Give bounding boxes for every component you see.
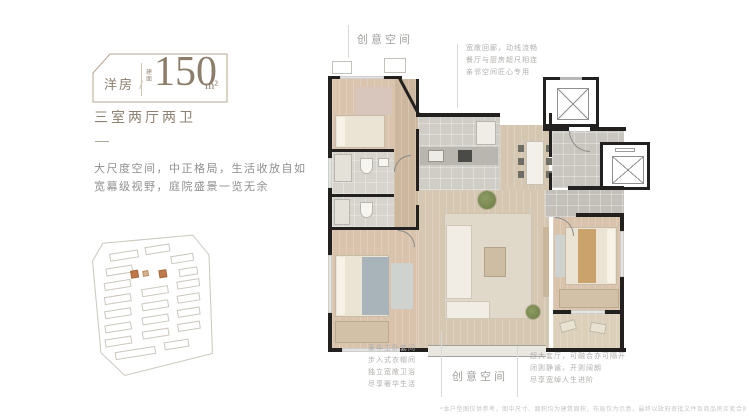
elevator-x-symbol bbox=[557, 88, 589, 120]
wall bbox=[418, 113, 500, 117]
product-type-text: 洋房 bbox=[104, 77, 134, 92]
master-note-1: 豪华主卧套间 bbox=[368, 343, 416, 353]
wall bbox=[549, 173, 552, 190]
area-prefix: 建面 bbox=[146, 70, 153, 84]
dining-note-2: 闭则静谧，开则阔朗 bbox=[530, 363, 602, 373]
wall bbox=[543, 127, 569, 131]
bathtub bbox=[334, 199, 350, 225]
bottom-space-label: 创意空间 bbox=[452, 368, 508, 384]
top-space-label: 创意空间 bbox=[357, 31, 413, 47]
stove bbox=[458, 150, 472, 162]
toilet bbox=[360, 158, 373, 174]
wall bbox=[328, 194, 394, 197]
sink bbox=[378, 158, 389, 167]
sofa-chaise bbox=[446, 301, 490, 319]
dining-chair bbox=[518, 171, 524, 178]
wardrobe bbox=[335, 321, 389, 343]
dining-note-1: 超大套厅，可融合亦可隔开 bbox=[530, 351, 626, 361]
kitchen-island bbox=[476, 121, 496, 145]
wall bbox=[590, 127, 626, 131]
disclaimer-text: *本户型图仅供参考，图中尺寸、面积均为建筑面积，布局仅为示意，最终以政府审批文件… bbox=[440, 404, 746, 413]
master-notes-divider bbox=[441, 331, 442, 397]
wall bbox=[549, 113, 552, 157]
section-dash bbox=[95, 141, 109, 142]
dining-note-3: 尽享宽绰人生进阶 bbox=[530, 375, 594, 385]
wall bbox=[576, 213, 624, 217]
rug bbox=[356, 87, 392, 115]
sofa bbox=[446, 225, 472, 299]
bed-pillow bbox=[337, 117, 345, 146]
floor-plan bbox=[328, 55, 662, 360]
bed-blanket bbox=[362, 257, 389, 315]
wall bbox=[416, 79, 419, 117]
master-note-2: 步入式衣帽间 bbox=[368, 355, 416, 365]
ac-platform bbox=[332, 61, 352, 74]
dining-notes-divider bbox=[517, 346, 518, 397]
entry-note-1: 宽敞回廊，动线流畅 bbox=[466, 43, 538, 53]
wall bbox=[416, 129, 419, 191]
rooms-summary: 三室两厅两卫 bbox=[94, 107, 196, 127]
wall bbox=[553, 310, 571, 314]
site-plan-sketch bbox=[78, 228, 230, 380]
window bbox=[340, 76, 384, 79]
rug bbox=[555, 235, 565, 277]
shower bbox=[334, 154, 352, 182]
window bbox=[571, 310, 605, 314]
bed-blanket bbox=[578, 229, 596, 283]
intro-line-1: 大尺度空间，中正格局，生活收放自如 bbox=[94, 160, 307, 176]
wall bbox=[605, 310, 623, 314]
intro-line-2: 宽幕级视野，庭院盛景一览无余 bbox=[94, 178, 269, 194]
tv-console bbox=[543, 227, 549, 297]
bed-pillow bbox=[337, 257, 345, 315]
rug bbox=[391, 263, 413, 309]
elevator-top-notch bbox=[560, 77, 582, 80]
elevator-x-symbol bbox=[612, 156, 644, 184]
badge-divider bbox=[141, 63, 142, 96]
hallway-strip bbox=[394, 79, 418, 229]
product-type-label: 洋房 / bbox=[104, 74, 145, 93]
window bbox=[328, 158, 332, 188]
toilet bbox=[360, 202, 373, 218]
window bbox=[620, 231, 624, 277]
bed-guest bbox=[335, 255, 389, 317]
master-note-3: 独立宽敞卫浴 bbox=[368, 367, 416, 377]
bed-secondary bbox=[335, 115, 385, 148]
area-unit: m² bbox=[205, 78, 218, 93]
dining-chair bbox=[518, 145, 524, 152]
bay-window bbox=[428, 345, 546, 357]
wall bbox=[328, 149, 394, 152]
window bbox=[328, 255, 332, 313]
elevator-door-mark bbox=[615, 148, 635, 152]
kitchen-sink bbox=[428, 150, 444, 162]
top-callout-divider bbox=[348, 25, 349, 58]
wall bbox=[568, 186, 624, 190]
ac-platform bbox=[384, 58, 406, 73]
wall bbox=[416, 205, 419, 230]
dining-chair bbox=[518, 158, 524, 165]
elevator-shaft-2 bbox=[600, 142, 650, 190]
bed-pillow bbox=[607, 229, 615, 283]
wall bbox=[328, 227, 418, 230]
floorplan-poster: 洋房 / 建面 150 m² 三室两厅两卫 大尺度空间，中正格局，生活收放自如 … bbox=[0, 0, 749, 419]
plant bbox=[526, 305, 540, 319]
wardrobe bbox=[559, 289, 619, 308]
master-note-4: 尽享奢华生活 bbox=[368, 379, 416, 389]
plant bbox=[478, 191, 496, 209]
dining-table bbox=[526, 141, 544, 185]
coffee-table bbox=[484, 247, 506, 277]
